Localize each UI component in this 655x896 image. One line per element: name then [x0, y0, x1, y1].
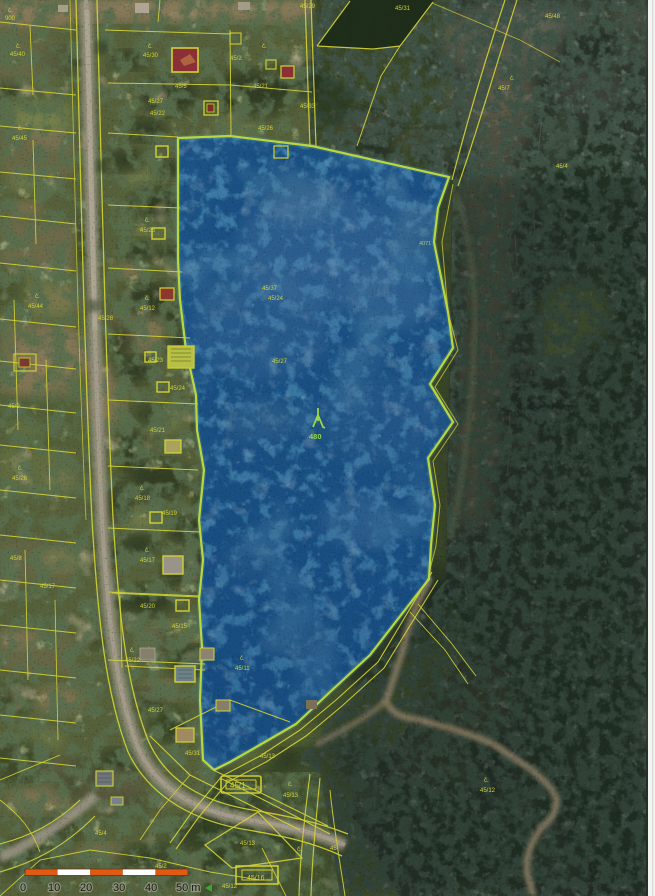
svg-text:45/25: 45/25 [140, 228, 156, 234]
svg-text:0: 0 [20, 882, 26, 894]
svg-text:č.: č. [288, 782, 293, 788]
svg-text:45/29: 45/29 [300, 4, 316, 10]
svg-text:45/18: 45/18 [135, 496, 151, 502]
svg-text:45/27: 45/27 [148, 708, 164, 714]
svg-text:45/40: 45/40 [10, 52, 26, 58]
svg-text:45/4: 45/4 [556, 164, 568, 170]
svg-text:č.: č. [148, 44, 153, 50]
svg-text:45/4: 45/4 [95, 831, 107, 837]
svg-text:45/1: 45/1 [230, 781, 246, 790]
svg-text:45/12: 45/12 [480, 788, 496, 794]
svg-text:45/31: 45/31 [395, 6, 411, 12]
svg-text:45/12: 45/12 [140, 306, 156, 312]
svg-text:50 m: 50 m [176, 882, 200, 894]
svg-text:45/22: 45/22 [150, 111, 166, 117]
svg-text:45/21: 45/21 [253, 84, 269, 90]
svg-text:900: 900 [5, 16, 16, 22]
svg-text:č.: č. [16, 44, 21, 50]
svg-text:č.: č. [297, 847, 302, 853]
svg-text:45/9: 45/9 [8, 404, 20, 410]
svg-text:10: 10 [48, 882, 60, 894]
svg-text:č.: č. [18, 126, 23, 132]
svg-text:45/7: 45/7 [498, 86, 510, 92]
svg-text:45/45: 45/45 [12, 136, 28, 142]
svg-text:č.: č. [145, 296, 150, 302]
svg-text:45/5: 45/5 [175, 84, 187, 90]
svg-text:45/24: 45/24 [268, 296, 284, 302]
svg-text:45/31: 45/31 [185, 751, 201, 757]
svg-text:45/17: 45/17 [40, 584, 56, 590]
svg-text:30: 30 [113, 882, 125, 894]
svg-text:45/19: 45/19 [162, 511, 178, 517]
svg-text:45/12: 45/12 [222, 884, 238, 890]
svg-text:45/11: 45/11 [235, 666, 250, 672]
svg-text:č.: č. [8, 8, 13, 14]
svg-text:45/13: 45/13 [240, 841, 256, 847]
svg-text:45/20: 45/20 [140, 604, 156, 610]
svg-text:č.: č. [130, 648, 135, 654]
svg-text:č.: č. [240, 656, 245, 662]
svg-text:č.: č. [35, 294, 40, 300]
svg-text:45/26: 45/26 [12, 476, 28, 482]
svg-text:45/21: 45/21 [150, 428, 166, 434]
svg-text:45/28: 45/28 [98, 316, 114, 322]
svg-text:20: 20 [80, 882, 92, 894]
svg-text:45/13: 45/13 [283, 793, 299, 799]
svg-text:45/22: 45/22 [125, 658, 141, 664]
svg-text:č.: č. [510, 76, 515, 82]
svg-text:45/27: 45/27 [148, 99, 164, 105]
svg-text:4071: 4071 [419, 241, 431, 247]
svg-text:45/24: 45/24 [170, 386, 186, 392]
svg-text:45/27: 45/27 [272, 359, 288, 365]
svg-text:č.: č. [484, 778, 489, 784]
svg-text:45/23: 45/23 [148, 358, 164, 364]
svg-text:č.: č. [262, 44, 267, 50]
svg-text:480: 480 [309, 432, 322, 441]
svg-text:45/44: 45/44 [28, 304, 44, 310]
svg-text:45/26: 45/26 [258, 126, 274, 132]
svg-text:č.: č. [140, 486, 145, 492]
svg-text:45/37: 45/37 [262, 286, 278, 292]
svg-text:45/33: 45/33 [300, 104, 316, 110]
svg-text:45/30: 45/30 [143, 53, 159, 59]
svg-text:č.: č. [18, 466, 23, 472]
svg-text:č.: č. [145, 548, 150, 554]
svg-text:45/2: 45/2 [230, 56, 242, 62]
svg-text:45: 45 [330, 846, 337, 852]
svg-text:45/15: 45/15 [172, 624, 188, 630]
svg-text:40: 40 [145, 882, 157, 894]
svg-text:45/16: 45/16 [247, 875, 265, 882]
svg-text:45/17: 45/17 [140, 558, 156, 564]
svg-text:45/13: 45/13 [260, 754, 276, 760]
svg-text:č.: č. [145, 218, 150, 224]
svg-text:45/48: 45/48 [545, 14, 561, 20]
svg-text:45/8: 45/8 [10, 556, 22, 562]
